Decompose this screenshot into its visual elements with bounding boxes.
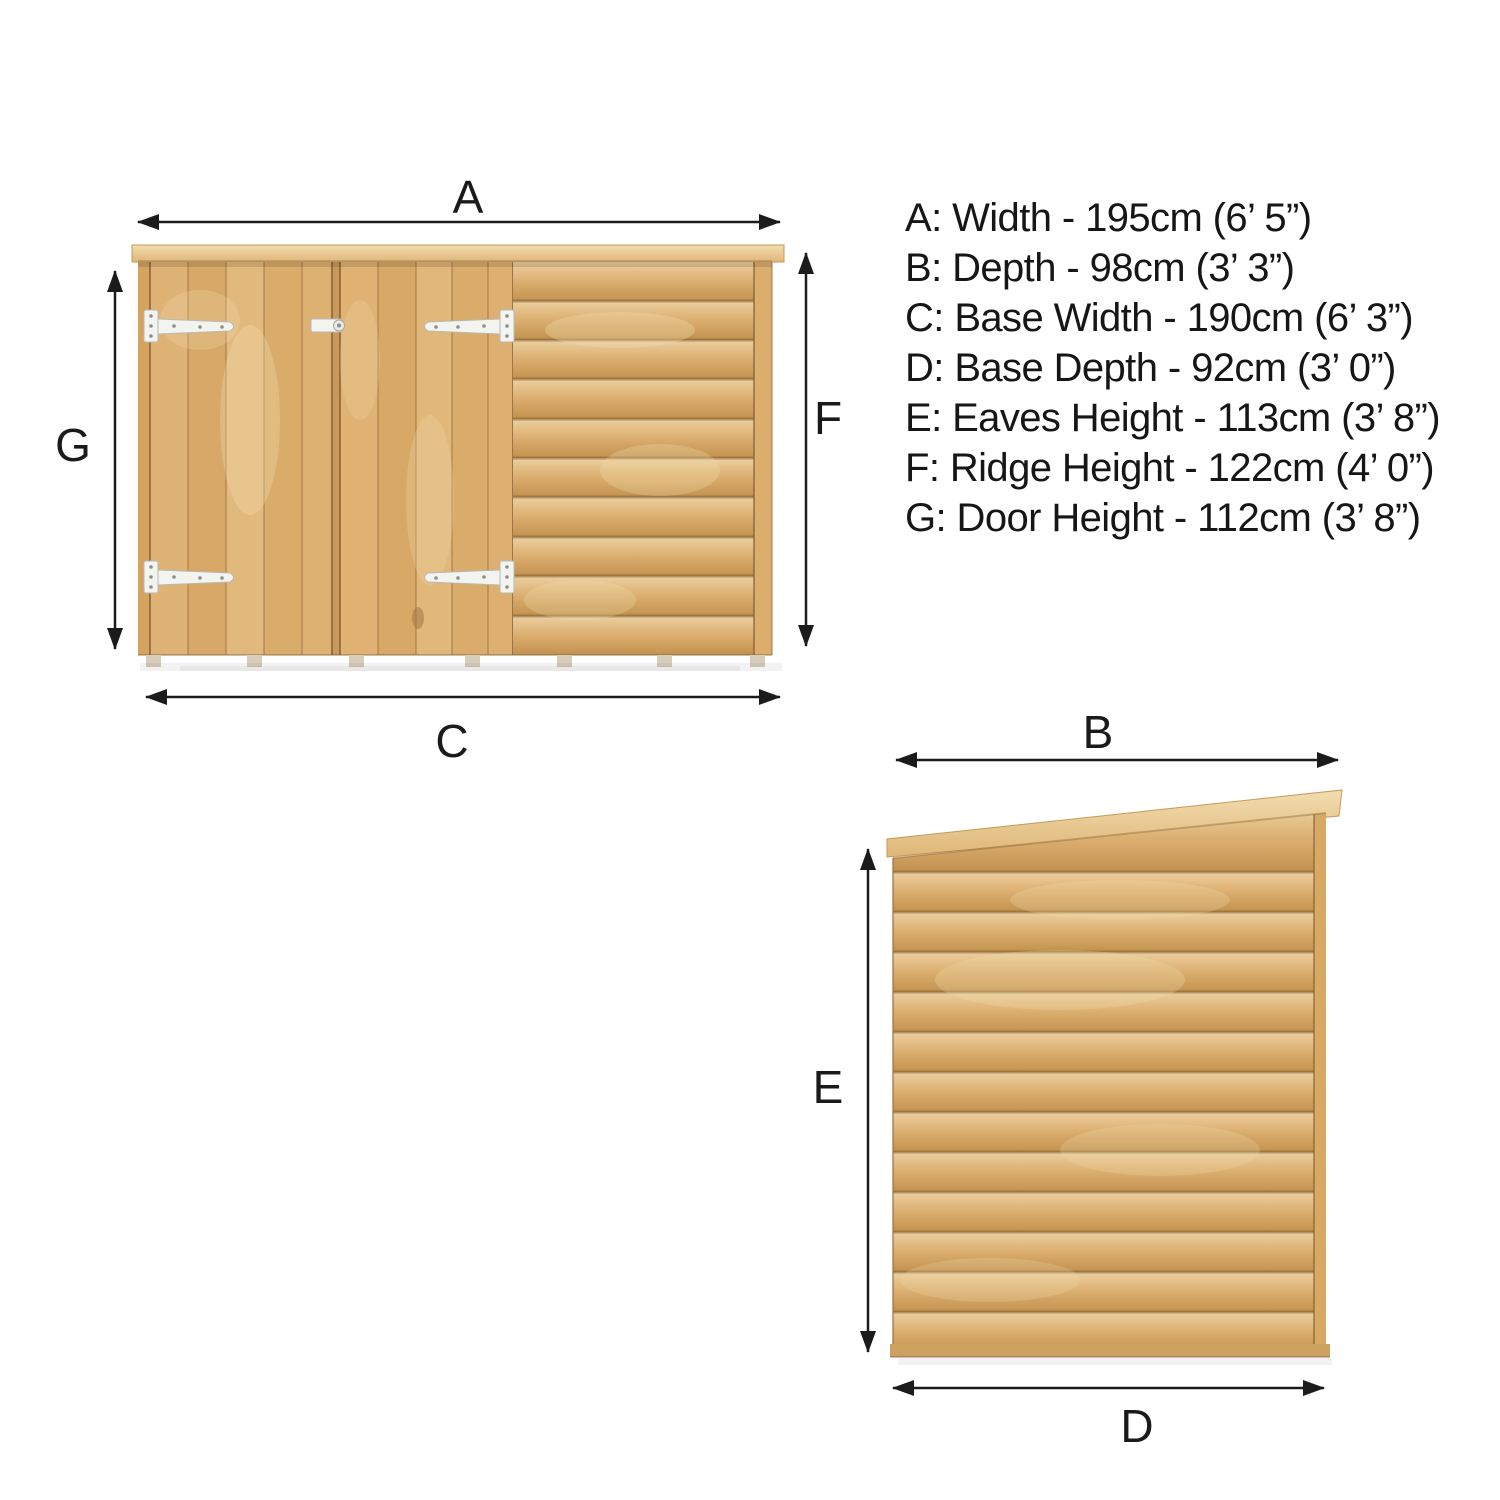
dimensions-list: A: Width - 195cm (6’ 5”) B: Depth - 98cm… <box>905 193 1485 543</box>
dim-letter-A: A <box>453 171 484 223</box>
side-base-strip <box>890 1344 1330 1357</box>
front-overlap-cladding <box>513 262 772 655</box>
dim-letter-C: C <box>435 715 468 767</box>
side-corner-trim <box>1314 808 1326 1352</box>
dimension-list-item: A: Width - 195cm (6’ 5”) <box>905 193 1485 243</box>
front-elevation: A G F C <box>55 171 842 767</box>
dimension-list-item: E: Eaves Height - 113cm (3’ 8”) <box>905 393 1485 443</box>
dim-letter-E: E <box>813 1061 844 1113</box>
side-overlap-wall <box>893 808 1326 1352</box>
front-ground-shadow-soft <box>180 666 740 671</box>
dimension-list-item: F: Ridge Height - 122cm (4’ 0”) <box>905 443 1485 493</box>
side-ground-shadow <box>898 1358 1332 1365</box>
dimension-list-item: D: Base Depth - 92cm (3’ 0”) <box>905 343 1485 393</box>
dimension-list-item: G: Door Height - 112cm (3’ 8”) <box>905 493 1485 543</box>
dimension-list-item: B: Depth - 98cm (3’ 3”) <box>905 243 1485 293</box>
dim-letter-F: F <box>814 392 842 444</box>
door-latch <box>311 319 345 332</box>
dim-letter-B: B <box>1083 706 1114 758</box>
dimension-list-item: C: Base Width - 190cm (6’ 3”) <box>905 293 1485 343</box>
side-elevation: B E D <box>813 706 1342 1452</box>
shed-dimensions-page: A G F C <box>0 0 1500 1500</box>
dim-letter-D: D <box>1120 1400 1153 1452</box>
front-corner-trim <box>754 262 772 655</box>
wood-knot <box>412 607 424 629</box>
dim-letter-G: G <box>55 419 91 471</box>
